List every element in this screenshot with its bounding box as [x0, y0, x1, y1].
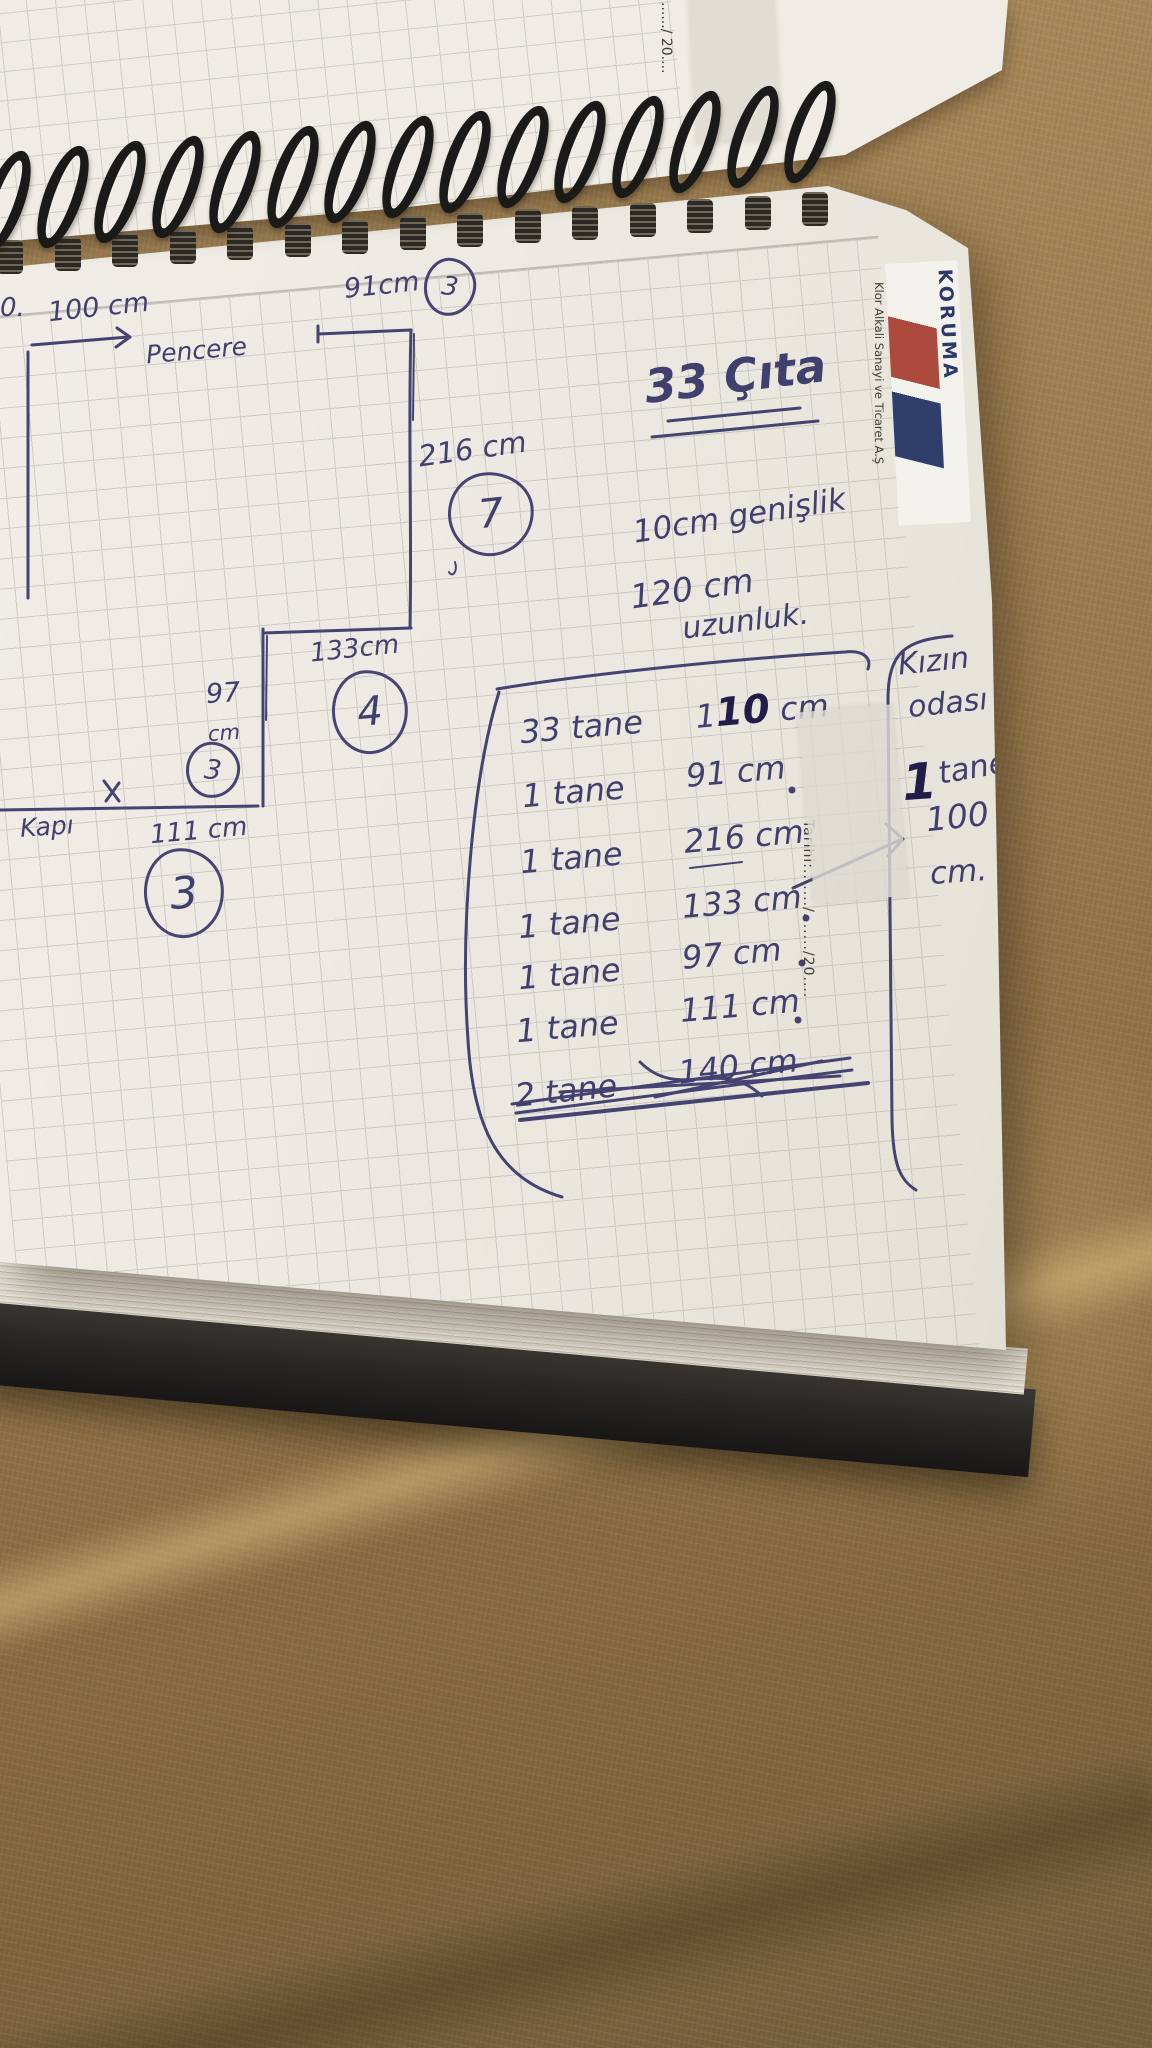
spiral-coil	[26, 140, 99, 254]
spiral-coil	[141, 130, 214, 244]
spiral-coil	[84, 135, 157, 249]
spiral-coil	[544, 95, 617, 209]
photo-of-notebook: 0. 100 cm Pencere 91cm 3 216 cm 7 133cm …	[0, 0, 1152, 2048]
spiral-coil	[0, 145, 41, 259]
spiral-coil	[601, 90, 674, 204]
spiral-coil	[371, 110, 444, 224]
spiral-coil	[199, 125, 272, 239]
spiral-coil	[314, 115, 387, 229]
spiral-coil	[774, 75, 847, 189]
spiral-binding	[0, 0, 1152, 2048]
spiral-coil	[486, 100, 559, 214]
spiral-coil	[716, 80, 789, 194]
spiral-coil	[256, 120, 329, 234]
spiral-coil	[429, 105, 502, 219]
spiral-coil	[659, 85, 732, 199]
